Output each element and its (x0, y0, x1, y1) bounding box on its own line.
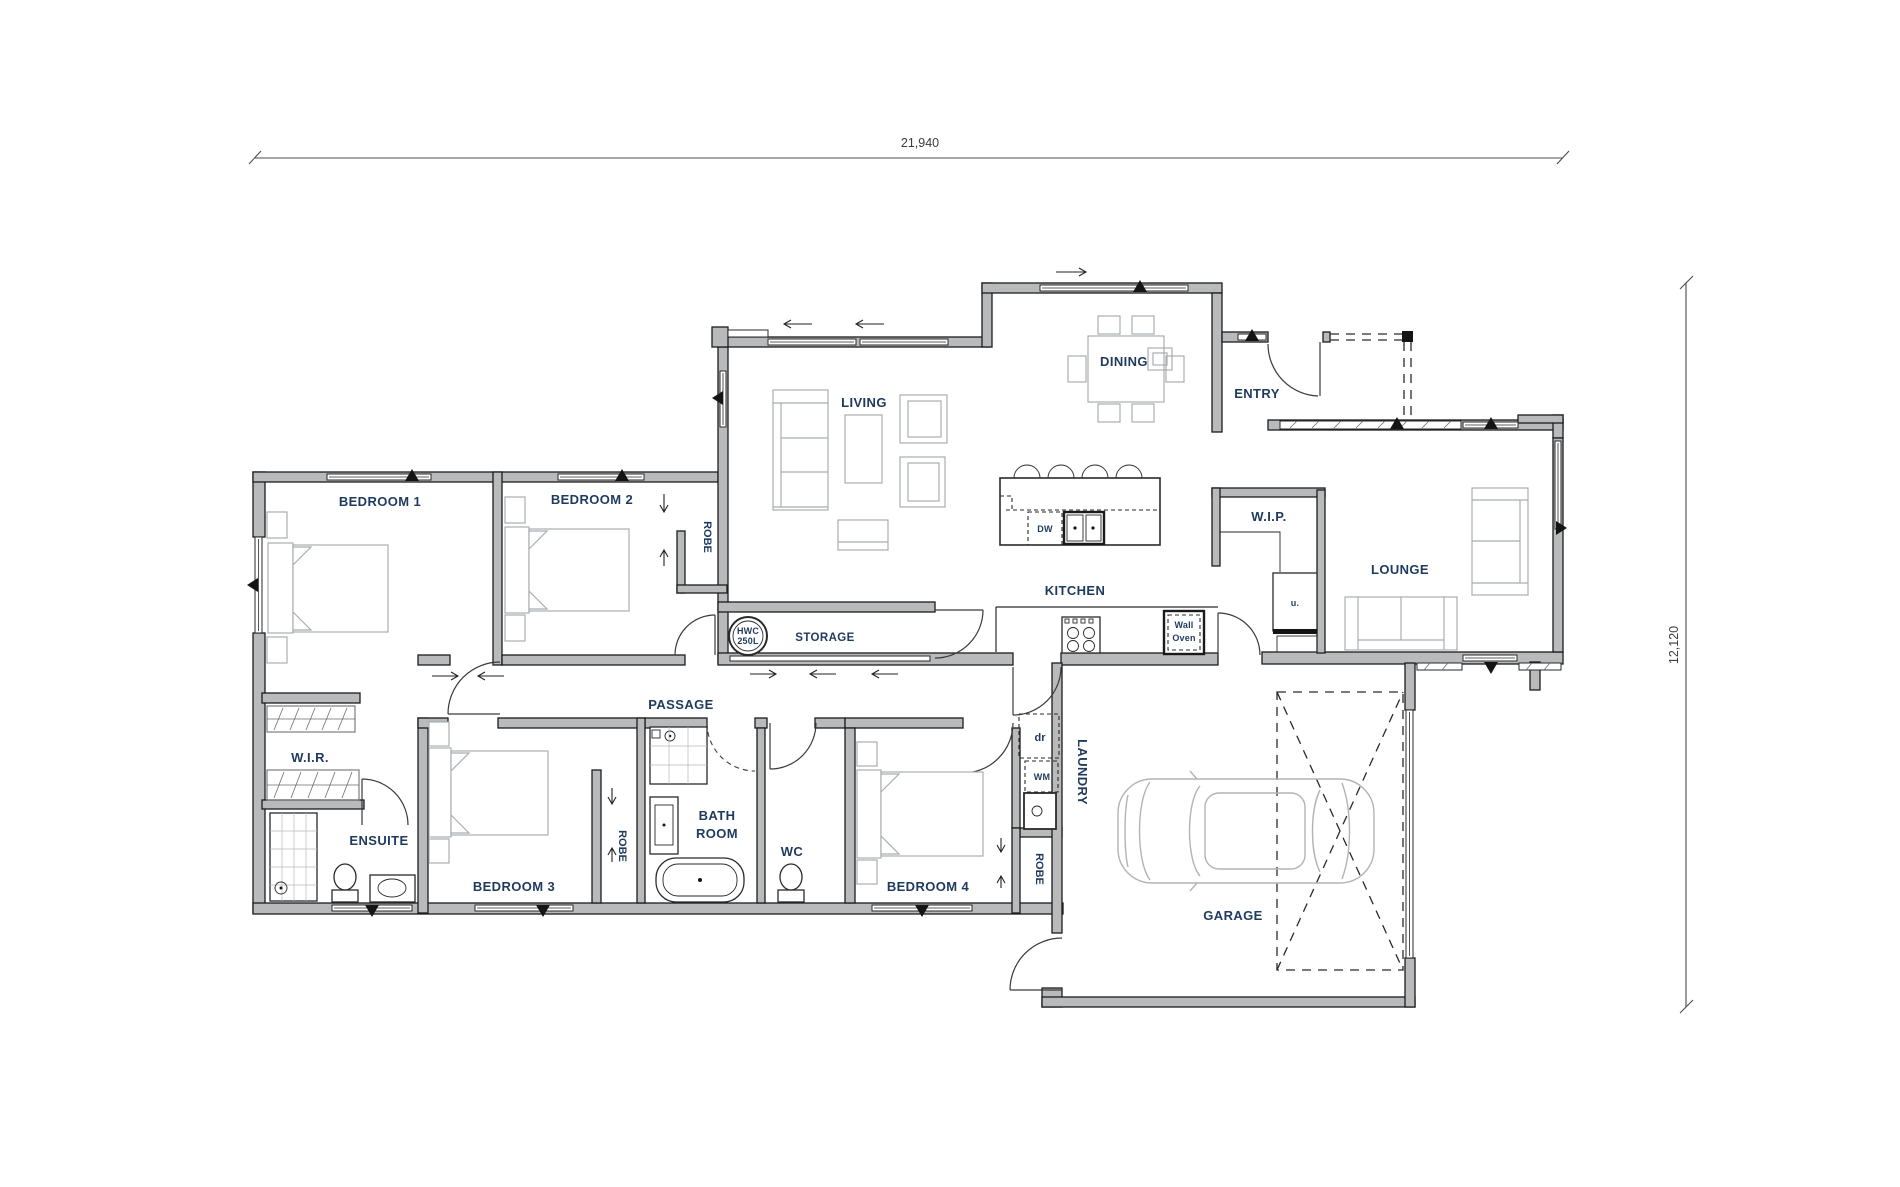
room-label-wip: W.I.P. (1251, 509, 1286, 524)
washer-label: WM (1034, 772, 1050, 782)
room-label-bedroom1: BEDROOM 1 (339, 494, 421, 509)
wall-oven-label-2: Oven (1172, 633, 1195, 643)
fridge-space: u. (1273, 573, 1317, 652)
room-label-living: LIVING (841, 395, 887, 410)
ensuite-vanity (370, 875, 415, 902)
garage-door-panel (1277, 692, 1403, 970)
room-label-lounge: LOUNGE (1371, 562, 1429, 577)
room-label-bedroom2: BEDROOM 2 (551, 492, 633, 507)
room-label-entry: ENTRY (1234, 386, 1280, 401)
living-sofa (773, 390, 828, 510)
dining-table (1068, 316, 1184, 422)
wip-shelves (1220, 532, 1280, 572)
hwc-label-2: 250L (737, 636, 759, 646)
room-label-kitchen: KITCHEN (1045, 583, 1106, 598)
robe-label-bedroom4: ROBE (1033, 853, 1045, 885)
bed-bedroom3 (429, 722, 548, 863)
floor-plan-canvas: 21,940 12,120 (0, 0, 1900, 1187)
dimension-right: 12,120 (1667, 276, 1693, 1013)
bathroom-shower (650, 727, 707, 784)
hwc-cylinder: HWC 250L (729, 617, 767, 655)
lounge-sofa-south (1345, 597, 1457, 650)
room-label-dining: DINING (1100, 354, 1148, 369)
room-label-bath-1: BATH (699, 808, 736, 823)
cooktop (1062, 617, 1100, 653)
room-label-bedroom4: BEDROOM 4 (887, 879, 970, 894)
room-label-bedroom3: BEDROOM 3 (473, 879, 555, 894)
dishwasher-label: DW (1037, 524, 1053, 534)
kitchen-bench: Wall Oven (996, 607, 1218, 654)
canopy-post (1402, 331, 1413, 342)
ensuite-shower (270, 813, 317, 901)
laundry-tub (1024, 793, 1056, 829)
room-label-bath-2: ROOM (696, 826, 738, 841)
room-label-passage: PASSAGE (648, 697, 713, 712)
living-coffee-table (845, 415, 882, 483)
bed-bedroom4 (857, 742, 983, 884)
storage-sliding-front (730, 656, 930, 661)
bathroom-bath (656, 858, 744, 902)
kitchen-island: DW (1000, 465, 1160, 545)
floor-plan-drawing: 21,940 12,120 (0, 0, 1900, 1187)
robe-label-bedroom3: ROBE (616, 830, 628, 862)
living-armchair-2 (900, 457, 945, 507)
robe-label-bedroom2: ROBE (701, 521, 713, 553)
bed-bedroom2 (505, 497, 629, 641)
wall-oven-label-1: Wall (1175, 620, 1194, 630)
ensuite-toilet (332, 864, 358, 902)
dryer-label: dr (1035, 732, 1047, 744)
dim-right-label: 12,120 (1667, 626, 1681, 664)
hwc-label-1: HWC (737, 626, 759, 636)
dimension-top: 21,940 (249, 136, 1569, 164)
wall-oven: Wall Oven (1164, 611, 1204, 654)
bed-bedroom1 (267, 512, 388, 663)
fridge-label: u. (1291, 598, 1299, 608)
room-label-storage: STORAGE (795, 632, 854, 644)
lounge-sofa-east (1472, 488, 1528, 595)
dim-top-label: 21,940 (901, 136, 939, 150)
room-label-garage: GARAGE (1203, 908, 1262, 923)
living-side-table (838, 520, 888, 550)
wc-toilet (778, 864, 804, 902)
room-label-laundry: LAUNDRY (1075, 739, 1090, 805)
bathroom-vanity (650, 797, 678, 854)
car (1118, 771, 1374, 891)
island-sink (1064, 512, 1104, 544)
room-label-ensuite: ENSUITE (349, 833, 408, 848)
living-armchair-1 (900, 395, 947, 443)
room-label-wir: W.I.R. (291, 750, 329, 765)
entry-canopy (1330, 331, 1413, 421)
room-label-wc: WC (781, 844, 804, 859)
